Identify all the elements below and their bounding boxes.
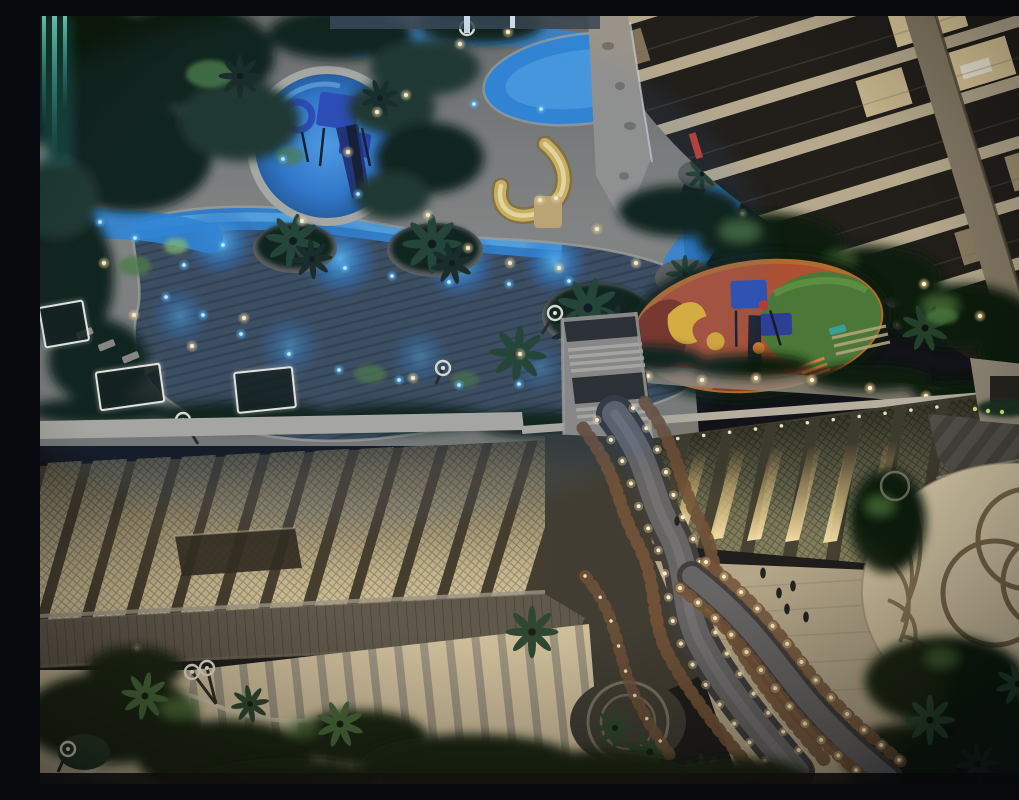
resort-aerial-photo	[40, 16, 1019, 784]
photo-canvas	[40, 16, 1019, 784]
vignette	[40, 16, 1019, 784]
atmosphere	[40, 16, 1019, 784]
